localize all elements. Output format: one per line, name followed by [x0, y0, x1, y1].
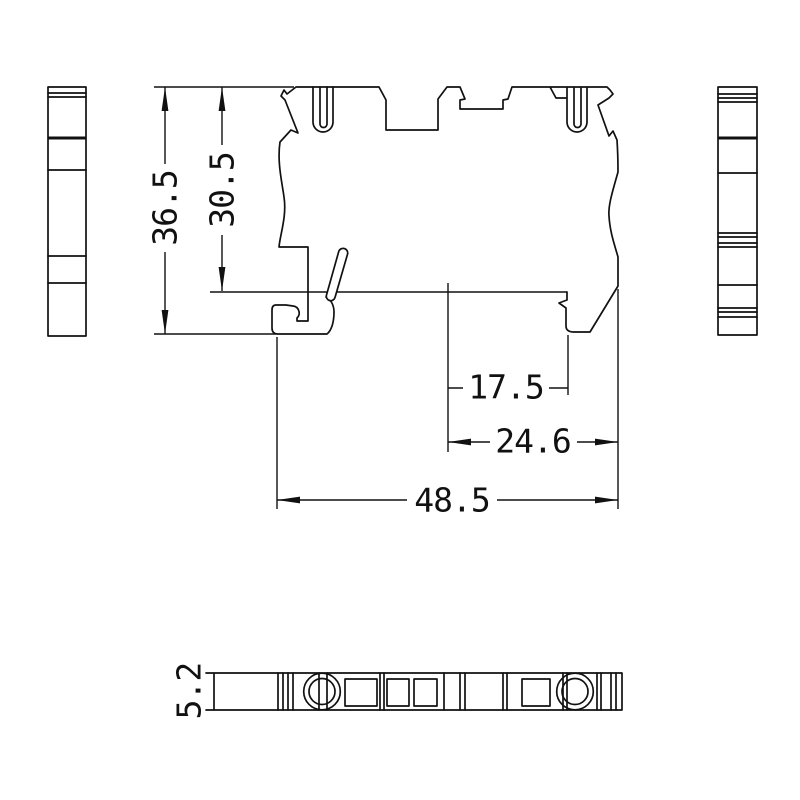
main-side-view: [210, 87, 618, 334]
dimension-label-center-to-latch: 17.5: [468, 368, 543, 407]
bottom-view-screw-hole-right-inner: [562, 679, 588, 705]
dimension-label-overall-height: 36.5: [146, 170, 185, 245]
dimension-center-to-right-edge: 24.6: [448, 422, 618, 461]
drawing-sheet: 36.5 30.5 17.5 24.6 48.5 5.2: [0, 0, 800, 800]
left-side-view: [48, 87, 86, 336]
arrow-30-5-bottom: [219, 267, 226, 291]
bottom-view-screw-hole-left-inner: [309, 679, 335, 705]
arrow-36-5-top: [162, 87, 169, 111]
dimension-label-height-above-rail: 30.5: [203, 152, 242, 227]
bottom-view-opening-1: [345, 679, 377, 706]
dimension-strip-thickness: 5.2: [170, 663, 209, 720]
bottom-view-opening-4: [522, 679, 550, 706]
right-view-body: [718, 87, 757, 335]
bottom-view-opening-2: [387, 679, 409, 706]
arrow-24-6-left: [448, 439, 471, 446]
release-lever: [326, 248, 347, 300]
bottom-view-opening-3: [414, 679, 437, 706]
right-view-segment-lines: [718, 94, 757, 317]
right-side-view: [718, 87, 757, 335]
arrow-30-5-top: [219, 87, 226, 111]
right-screw-slot: [567, 88, 587, 132]
left-view-segment-lines: [48, 93, 86, 283]
main-outline: [272, 87, 618, 334]
left-screw-slot: [313, 87, 333, 132]
bottom-view-partitions: [278, 673, 616, 710]
arrow-36-5-bottom: [162, 310, 169, 334]
technical-drawing-canvas: 36.5 30.5 17.5 24.6 48.5 5.2: [0, 0, 800, 800]
dimension-label-center-to-right-edge: 24.6: [495, 422, 570, 461]
arrow-48-5-left: [277, 497, 300, 504]
left-view-body: [48, 87, 86, 336]
dimension-label-strip-thickness: 5.2: [170, 663, 209, 720]
arrow-24-6-right: [595, 439, 618, 446]
dimension-label-overall-width: 48.5: [414, 481, 489, 520]
bottom-view: [206, 673, 622, 710]
arrow-48-5-right: [595, 497, 618, 504]
dimension-height-above-rail: 30.5: [203, 87, 242, 291]
